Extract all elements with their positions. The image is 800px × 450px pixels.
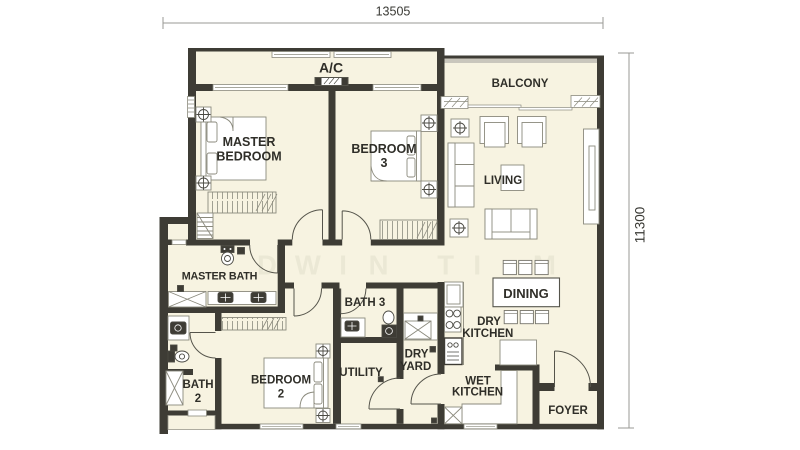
svg-text:BATH: BATH	[182, 379, 213, 391]
svg-text:KITCHEN: KITCHEN	[452, 387, 503, 399]
svg-text:W: W	[295, 250, 321, 281]
svg-text:T: T	[437, 250, 454, 281]
svg-text:BEDROOM: BEDROOM	[251, 375, 311, 387]
svg-text:KITCHEN: KITCHEN	[462, 328, 513, 340]
svg-text:MASTERBEDROOM: MASTERBEDROOM	[216, 135, 281, 164]
svg-text:D: D	[257, 250, 277, 281]
svg-text:MASTER BATH: MASTER BATH	[182, 271, 258, 283]
svg-text:UTILITY: UTILITY	[339, 367, 383, 379]
svg-text:BALCONY: BALCONY	[492, 78, 549, 90]
svg-text:BATH 3: BATH 3	[345, 297, 386, 309]
svg-text:I: I	[339, 250, 347, 281]
svg-text:YARD: YARD	[400, 361, 432, 373]
svg-text:11300: 11300	[633, 207, 648, 244]
svg-text:DRY: DRY	[477, 316, 501, 328]
svg-text:2: 2	[278, 389, 284, 401]
svg-text:DRY: DRY	[405, 349, 429, 361]
svg-text:FOYER: FOYER	[548, 405, 588, 417]
svg-text:13505: 13505	[376, 5, 411, 19]
svg-text:I: I	[473, 250, 481, 281]
svg-text:A/C: A/C	[319, 60, 343, 76]
svg-text:LIVING: LIVING	[484, 175, 522, 187]
svg-text:DINING: DINING	[503, 286, 549, 301]
svg-text:2: 2	[195, 393, 201, 405]
svg-text:N: N	[369, 250, 389, 281]
